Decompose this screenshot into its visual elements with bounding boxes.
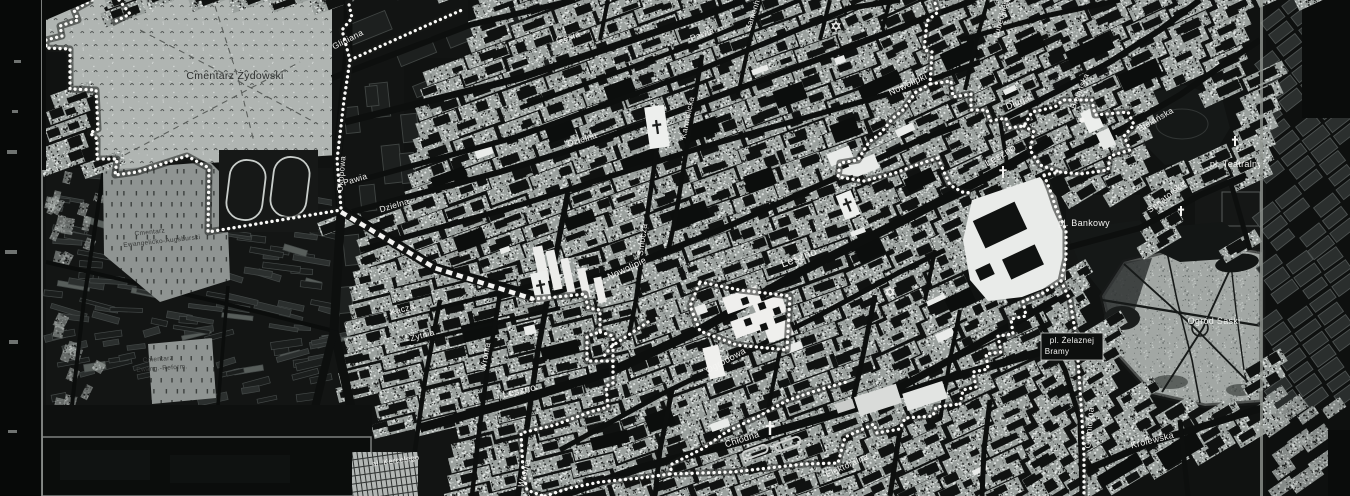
svg-text:Ogród Saski: Ogród Saski (1188, 316, 1241, 326)
svg-text:pl. Bankowy: pl. Bankowy (1058, 218, 1110, 228)
svg-text:Bramy: Bramy (1045, 347, 1070, 356)
svg-text:pl. Teatralny: pl. Teatralny (1210, 159, 1262, 169)
svg-text:pl. Żelaznej: pl. Żelaznej (1050, 336, 1095, 345)
svg-text:Cmentarz Żydowski: Cmentarz Żydowski (186, 69, 283, 82)
